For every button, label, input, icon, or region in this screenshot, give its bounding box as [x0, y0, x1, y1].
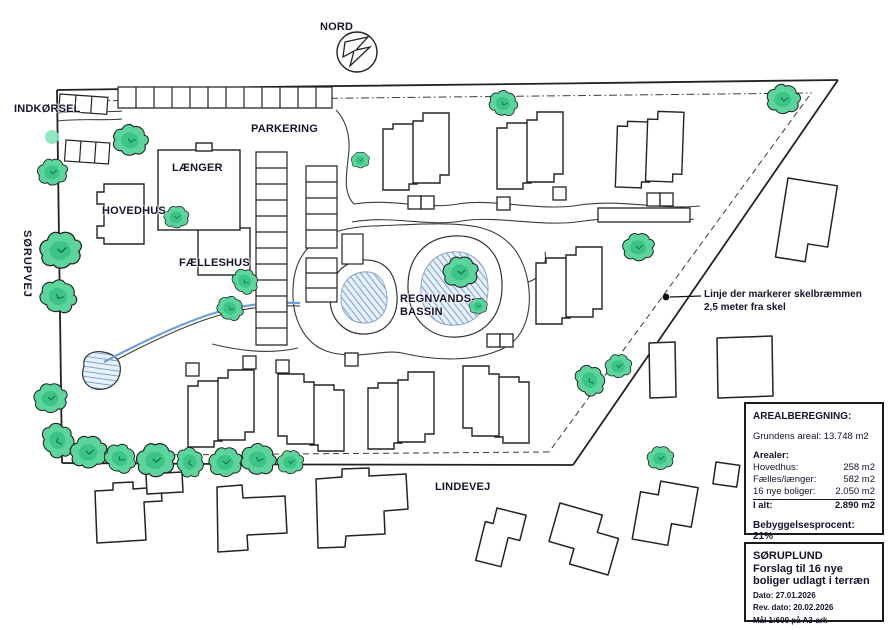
north-label: NORD [320, 21, 353, 34]
setback-callout-line1: Linje der markerer skelbræmmen [704, 288, 862, 301]
area-row-label: Hovedhus: [753, 462, 798, 474]
north-arrow [343, 37, 370, 66]
internal-roads [57, 110, 700, 368]
area-row-total: I alt: 2.890 m2 [753, 500, 875, 512]
area-row-value: 2.050 m2 [835, 486, 875, 498]
area-row-hovedhus: Hovedhus: 258 m2 [753, 462, 875, 474]
setback-callout-marker [663, 294, 701, 301]
area-row-label: 16 nye boliger: [753, 486, 815, 498]
project-subtitle-line2: boliger udlagt i terræn [753, 575, 875, 588]
title-block: SØRUPLUND Forslag til 16 nye boliger udl… [744, 542, 884, 622]
area-row-value: 582 m2 [843, 474, 875, 486]
ground-area: Grundens areal: 13.748 m2 [753, 431, 875, 443]
laenger-label: LÆNGER [172, 162, 223, 175]
rain-basin-label-line2: BASSIN [400, 306, 475, 319]
area-row-value: 258 m2 [843, 462, 875, 474]
area-row-label: Fælles/længer: [753, 474, 816, 486]
coverage-percent: Bebyggelsesprocent: 21% [753, 520, 875, 543]
project-name: SØRUPLUND [753, 550, 875, 563]
rain-basin-label-line1: REGNVANDS- [400, 293, 475, 306]
north-compass [337, 32, 377, 72]
area-row-faelles: Fælles/længer: 582 m2 [753, 474, 875, 486]
areas-heading: Arealer: [753, 450, 875, 462]
area-row-label: I alt: [753, 500, 773, 512]
faelleshus-label: FÆLLESHUS [179, 257, 250, 270]
area-row-value: 2.890 m2 [835, 500, 875, 512]
setback-callout-line2: 2,5 meter fra skel [704, 301, 862, 314]
project-subtitle-line1: Forslag til 16 nye [753, 563, 875, 576]
rain-basin-label: REGNVANDS- BASSIN [400, 293, 475, 319]
setback-callout-text: Linje der markerer skelbræmmen 2,5 meter… [704, 288, 862, 314]
street-label-sorupvej: SØRUPVEJ [20, 230, 33, 298]
lindevej-label: LINDEVEJ [435, 481, 490, 494]
entrance-green-dot [45, 130, 59, 144]
area-box-title: AREALBEREGNING: [753, 411, 875, 423]
site-plan-canvas: NORD INDKØRSEL SØRUPVEJ PARKERING LÆNGER… [0, 0, 893, 630]
scale-line: Mål 1:600 på A3-ark [753, 616, 875, 626]
rev-date-line: Rev. dato: 20.02.2026 [753, 603, 875, 613]
hovedhus-label: HOVEDHUS [102, 205, 166, 218]
date-line: Dato: 27.01.2026 [753, 591, 875, 601]
entrance-label: INDKØRSEL [14, 103, 81, 116]
area-calculation-box: AREALBEREGNING: Grundens areal: 13.748 m… [744, 402, 884, 535]
area-row-boliger: 16 nye boliger: 2.050 m2 [753, 486, 875, 500]
parking-label: PARKERING [251, 123, 318, 136]
